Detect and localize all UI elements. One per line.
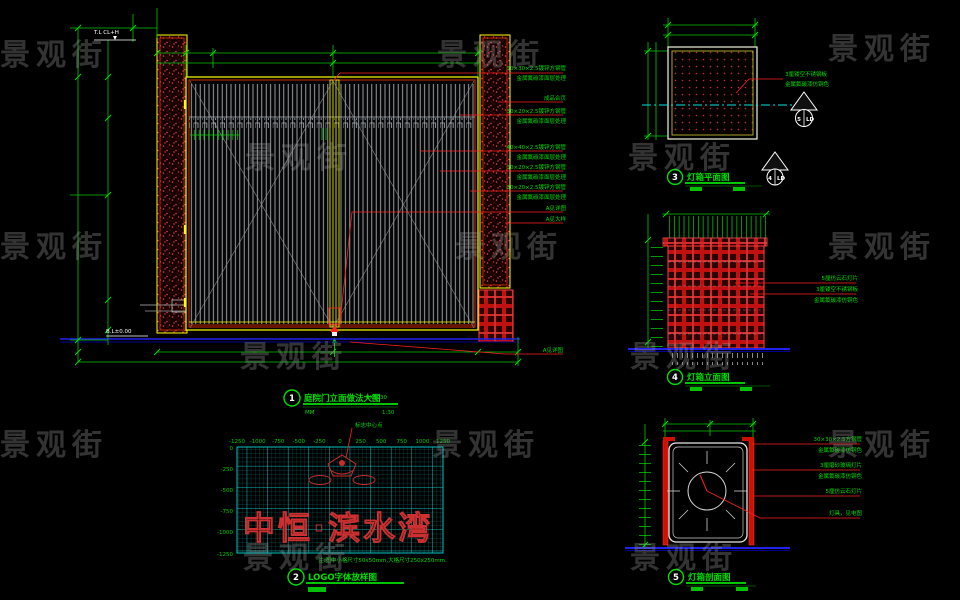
axis-label: -750	[272, 439, 285, 445]
gate-annotations: 30×30×2.5镀锌方钢管 金属氟碳漆面层处理 成品合页 30×20×2.5镀…	[507, 64, 567, 354]
annotation: A见详图	[546, 204, 567, 212]
cad-drawing-sheet: 30×30×2.5镀锌方钢管 金属氟碳漆面层处理 成品合页 30×20×2.5镀…	[0, 0, 960, 600]
drawing-title: 灯箱平面图	[687, 172, 730, 183]
axis-label: -500	[221, 488, 234, 494]
axis-label: 750	[397, 439, 408, 445]
annotation: 30×30×2.5方钢管	[814, 435, 863, 443]
drawing-number: 5	[673, 573, 679, 583]
annotation: 30×20×2.5镀锌方钢管	[507, 107, 567, 115]
annotation: 金属氟碳漆面层处理	[516, 117, 566, 125]
lampbox-annotations: 5厘仿云石灯片 3厘镂空不锈钢板 金属氟碳漆仿铜色	[814, 274, 859, 304]
title-1: 1 庭院门立面做法大图 EXT030 MM 1:30	[284, 390, 398, 416]
elevation-marker-bottom: B.L±0.00	[106, 329, 132, 335]
axis-label: -1000	[250, 439, 266, 445]
marker-number: 4	[768, 176, 772, 182]
axis-label: -750	[221, 509, 234, 515]
annotation: 3厘镂空不锈钢板	[785, 70, 827, 78]
axis-label: -1250	[217, 552, 233, 558]
drawing-1-gate-elevation: 30×30×2.5镀锌方钢管 金属氟碳漆面层处理 成品合页 30×20×2.5镀…	[60, 8, 566, 416]
section-annotations: 30×30×2.5方钢管 金属氟碳漆仿铜色 3厘磨砂玻璃灯片 金属氟碳漆仿铜色 …	[814, 435, 863, 517]
drawing-title: 灯箱立面图	[687, 372, 730, 383]
dimension-lines	[645, 418, 756, 548]
title-5: 5 灯箱剖面图	[669, 570, 757, 592]
annotation: 金属氟碳漆仿铜色	[818, 472, 863, 480]
drawing-2-logo-grid: -1250 -1000 -750 -500 -250 0 250 500 750…	[217, 421, 450, 592]
drawing-number: 3	[672, 173, 678, 183]
drawing-title: LOGO字体放样图	[308, 572, 377, 583]
annotation: 40×40×2.5镀锌方钢管	[507, 143, 567, 151]
grid-x-labels: -1250 -1000 -750 -500 -250 0 250 500 750…	[229, 439, 450, 445]
annotation: 金属氟碳漆仿铜色	[818, 446, 863, 454]
annotation: 30×30×2.5镀锌方钢管	[507, 64, 567, 72]
drawing-number: 4	[672, 373, 678, 383]
axis-label: 500	[376, 439, 387, 445]
annotation: 金属氟碳漆面层处理	[516, 193, 566, 201]
scale-bar	[308, 587, 326, 592]
title-2: 2 LOGO字体放样图	[288, 569, 404, 592]
annotation: 30×20×2.5镀锌方钢管	[507, 163, 567, 171]
axis-label: -250	[221, 467, 234, 473]
annotation: 成品合页	[544, 94, 567, 102]
annotation: 金属氟碳漆面层处理	[516, 173, 566, 181]
annotation: 30×20×2.5镀锌方钢管	[507, 183, 567, 191]
scale-bar	[690, 387, 702, 391]
scale-bar	[733, 187, 745, 191]
annotation: 金属氟碳漆面层处理	[516, 74, 566, 82]
title-3: 3 灯箱平面图	[668, 170, 763, 192]
section-marker-icon: 5 LD	[791, 92, 817, 127]
scale-bar	[740, 387, 752, 391]
annotation: A见大样	[546, 215, 567, 223]
marker-number: 5	[797, 117, 801, 123]
drawing-number: 2	[293, 573, 299, 583]
annotation: 灯具，见电图	[829, 509, 863, 517]
cad-canvas: 30×30×2.5镀锌方钢管 金属氟碳漆面层处理 成品合页 30×20×2.5镀…	[0, 0, 960, 600]
axis-label: 0	[230, 446, 234, 452]
drawing-units: MM	[305, 410, 315, 416]
drawing-5-lampbox-section: 30×30×2.5方钢管 金属氟碳漆仿铜色 3厘磨砂玻璃灯片 金属氟碳漆仿铜色 …	[625, 418, 862, 591]
drawing-3-lampbox-plan: 3厘镂空不锈钢板 金属氟碳漆仿铜色 5 LD 4 LD 3 灯箱平面图	[642, 18, 830, 191]
title-4: 4 灯箱立面图	[668, 370, 771, 392]
drawing-code: EXT030	[366, 395, 388, 401]
annotation: 金属氟碳漆仿铜色	[785, 80, 830, 88]
axis-label: 1000	[415, 439, 429, 445]
logo-center-label: 标志中心点	[355, 421, 383, 429]
axis-label: -250	[313, 439, 326, 445]
axis-label: 1250	[436, 439, 450, 445]
axis-label: -1250	[229, 439, 245, 445]
marker-sheet: LD	[806, 117, 815, 123]
lamp-pointer	[700, 475, 707, 491]
drawing-number: 1	[289, 394, 295, 404]
elevation-triangle-icon	[113, 36, 117, 40]
scale-bar	[690, 187, 702, 191]
drawing-4-lampbox-elevation: 5厘仿云石灯片 3厘镂空不锈钢板 金属氟碳漆仿铜色 4 灯箱立面图	[628, 211, 858, 391]
drawing-scale: 1:30	[382, 410, 395, 416]
grid-note: 注:图中小格尺寸50x50mm,大格尺寸250x250mm.	[318, 556, 447, 564]
leader-lines	[707, 444, 860, 518]
annotation: 金属氟碳漆面层处理	[516, 153, 566, 161]
axis-label: -500	[293, 439, 306, 445]
section-marker-icon: 4 LD	[762, 152, 788, 185]
drawing-title: 灯箱剖面图	[688, 572, 731, 583]
axis-label: 250	[355, 439, 366, 445]
annotation: 5厘仿云石灯片	[822, 274, 859, 282]
scale-bar	[736, 587, 748, 591]
logo-setting-out-text: 中恒·滨水湾	[243, 509, 433, 547]
scale-bar	[691, 587, 703, 591]
axis-label: -1000	[217, 530, 233, 536]
elevation-marker-top: T.L CL+H	[93, 30, 119, 36]
annotation: 5厘仿云石灯片	[826, 487, 863, 495]
annotation: 3厘镂空不锈钢板	[816, 285, 858, 293]
dimension-ticks	[642, 421, 756, 548]
annotation: 3厘磨砂玻璃灯片	[820, 461, 862, 469]
grid-y-labels: 0 -250 -500 -750 -1000 -1250	[217, 446, 233, 558]
annotation: 金属氟碳漆仿铜色	[814, 296, 859, 304]
axis-label: 0	[338, 439, 342, 445]
marker-sheet: LD	[777, 176, 786, 182]
annotation: A见详图	[543, 346, 564, 354]
